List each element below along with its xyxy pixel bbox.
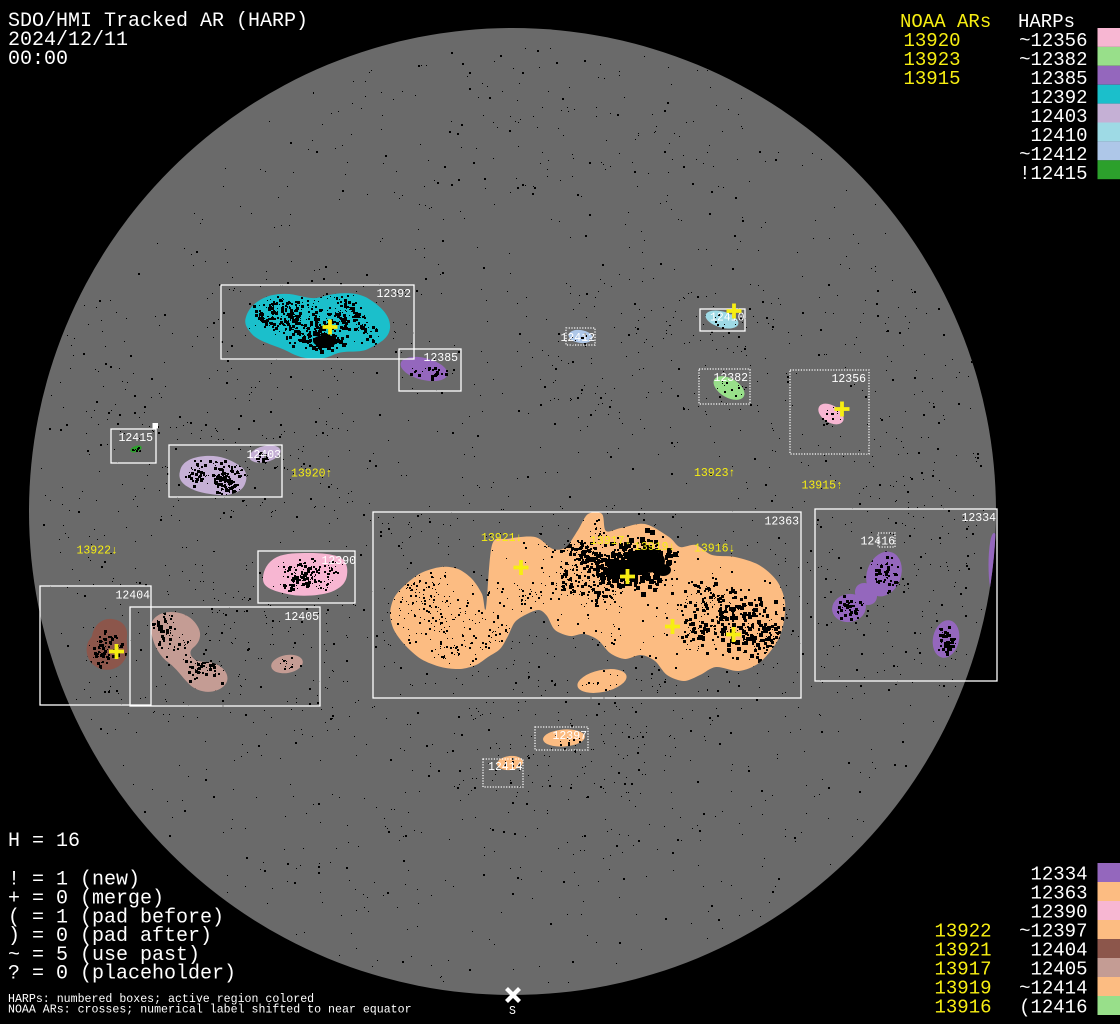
svg-text:12416: 12416 bbox=[860, 536, 895, 549]
svg-text:13921↓: 13921↓ bbox=[481, 532, 522, 545]
svg-text:12404: 12404 bbox=[115, 590, 150, 603]
svg-text:NOAA ARs: crosses; numerical l: NOAA ARs: crosses; numerical label shift… bbox=[8, 1004, 412, 1017]
svg-text:12356: 12356 bbox=[831, 373, 866, 386]
svg-text:13920↑: 13920↑ bbox=[291, 468, 332, 481]
svg-text:12415: 12415 bbox=[118, 432, 153, 445]
svg-text:13915↑: 13915↑ bbox=[802, 480, 843, 493]
svg-text:!12415: !12415 bbox=[1019, 163, 1087, 185]
svg-text:13916↓: 13916↓ bbox=[694, 543, 735, 556]
svg-text:12334: 12334 bbox=[961, 512, 996, 525]
svg-text:13922↓: 13922↓ bbox=[77, 545, 118, 558]
svg-text:13915: 13915 bbox=[903, 68, 960, 90]
svg-text:12385: 12385 bbox=[423, 352, 458, 365]
svg-text:12397: 12397 bbox=[552, 730, 587, 743]
svg-text:12412: 12412 bbox=[561, 332, 596, 345]
svg-text:12382: 12382 bbox=[713, 372, 748, 385]
svg-text:12363: 12363 bbox=[764, 516, 799, 529]
svg-text:12403: 12403 bbox=[246, 449, 281, 462]
svg-text:(12416: (12416 bbox=[1019, 997, 1087, 1019]
svg-text:? = 0 (placeholder): ? = 0 (placeholder) bbox=[8, 963, 236, 986]
svg-text:13916: 13916 bbox=[934, 997, 991, 1019]
svg-text:00:00: 00:00 bbox=[8, 48, 68, 71]
svg-text:12390: 12390 bbox=[321, 555, 356, 568]
svg-text:S: S bbox=[509, 1005, 516, 1018]
svg-text:12405: 12405 bbox=[284, 611, 319, 624]
svg-text:12414: 12414 bbox=[488, 761, 523, 774]
svg-text:12392: 12392 bbox=[376, 288, 411, 301]
svg-text:13919↓: 13919↓ bbox=[634, 541, 675, 554]
svg-text:12410: 12410 bbox=[710, 312, 745, 325]
svg-text:13917↓: 13917↓ bbox=[590, 535, 631, 548]
svg-text:13923↑: 13923↑ bbox=[694, 467, 735, 480]
svg-text:H = 16: H = 16 bbox=[8, 830, 80, 853]
